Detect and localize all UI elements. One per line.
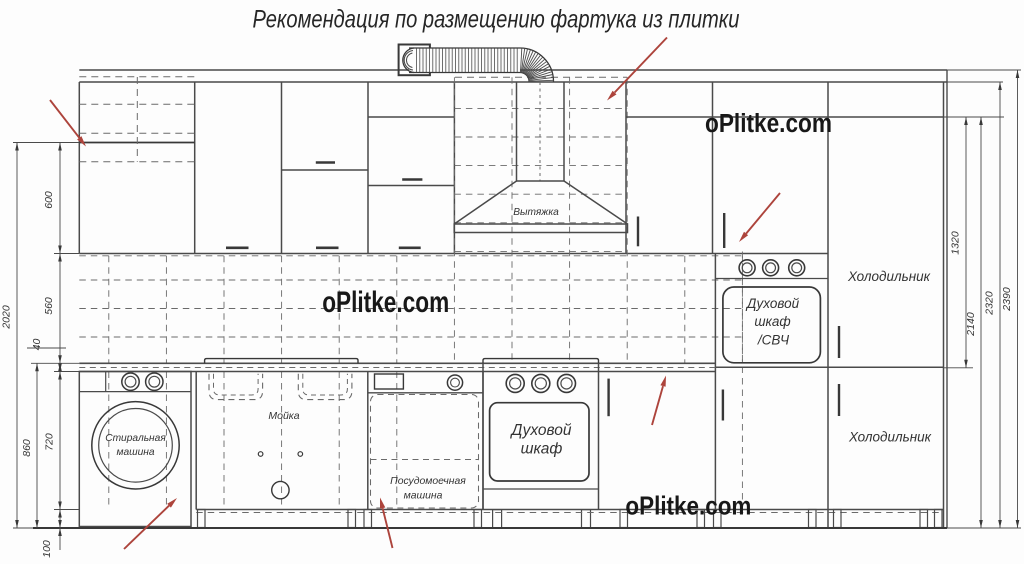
svg-text:Вытяжка: Вытяжка bbox=[513, 207, 559, 218]
svg-text:860: 860 bbox=[21, 439, 33, 457]
svg-text:машина: машина bbox=[116, 447, 154, 458]
svg-text:Холодильник: Холодильник bbox=[847, 269, 931, 284]
svg-text:1320: 1320 bbox=[950, 231, 962, 255]
svg-text:600: 600 bbox=[43, 191, 55, 209]
svg-text:Стиральная: Стиральная bbox=[105, 433, 166, 444]
svg-text:oPlitke.com: oPlitke.com bbox=[705, 110, 832, 138]
svg-text:2320: 2320 bbox=[984, 291, 996, 316]
svg-text:oPlitke.com: oPlitke.com bbox=[625, 490, 751, 520]
svg-text:Рекомендация по размещению фар: Рекомендация по размещению фартука из пл… bbox=[253, 6, 740, 34]
svg-text:oPlitke.com: oPlitke.com bbox=[322, 286, 449, 319]
svg-text:шкаф: шкаф bbox=[521, 441, 563, 458]
svg-text:2140: 2140 bbox=[965, 312, 977, 337]
svg-text:Духовой: Духовой bbox=[509, 422, 571, 439]
svg-text:шкаф: шкаф bbox=[754, 314, 790, 329]
svg-text:Мойка: Мойка bbox=[268, 410, 299, 422]
svg-text:2020: 2020 bbox=[1, 305, 13, 330]
svg-text:/СВЧ: /СВЧ bbox=[757, 333, 790, 348]
svg-text:100: 100 bbox=[41, 540, 53, 558]
svg-text:720: 720 bbox=[44, 433, 56, 451]
svg-text:Посудомоечная: Посудомоечная bbox=[390, 476, 466, 487]
svg-text:Духовой: Духовой bbox=[745, 296, 800, 311]
svg-text:560: 560 bbox=[43, 297, 55, 315]
svg-text:2390: 2390 bbox=[1001, 287, 1013, 312]
svg-text:Холодильник: Холодильник bbox=[848, 430, 932, 445]
svg-text:машина: машина bbox=[404, 491, 443, 502]
svg-text:40: 40 bbox=[31, 339, 43, 351]
